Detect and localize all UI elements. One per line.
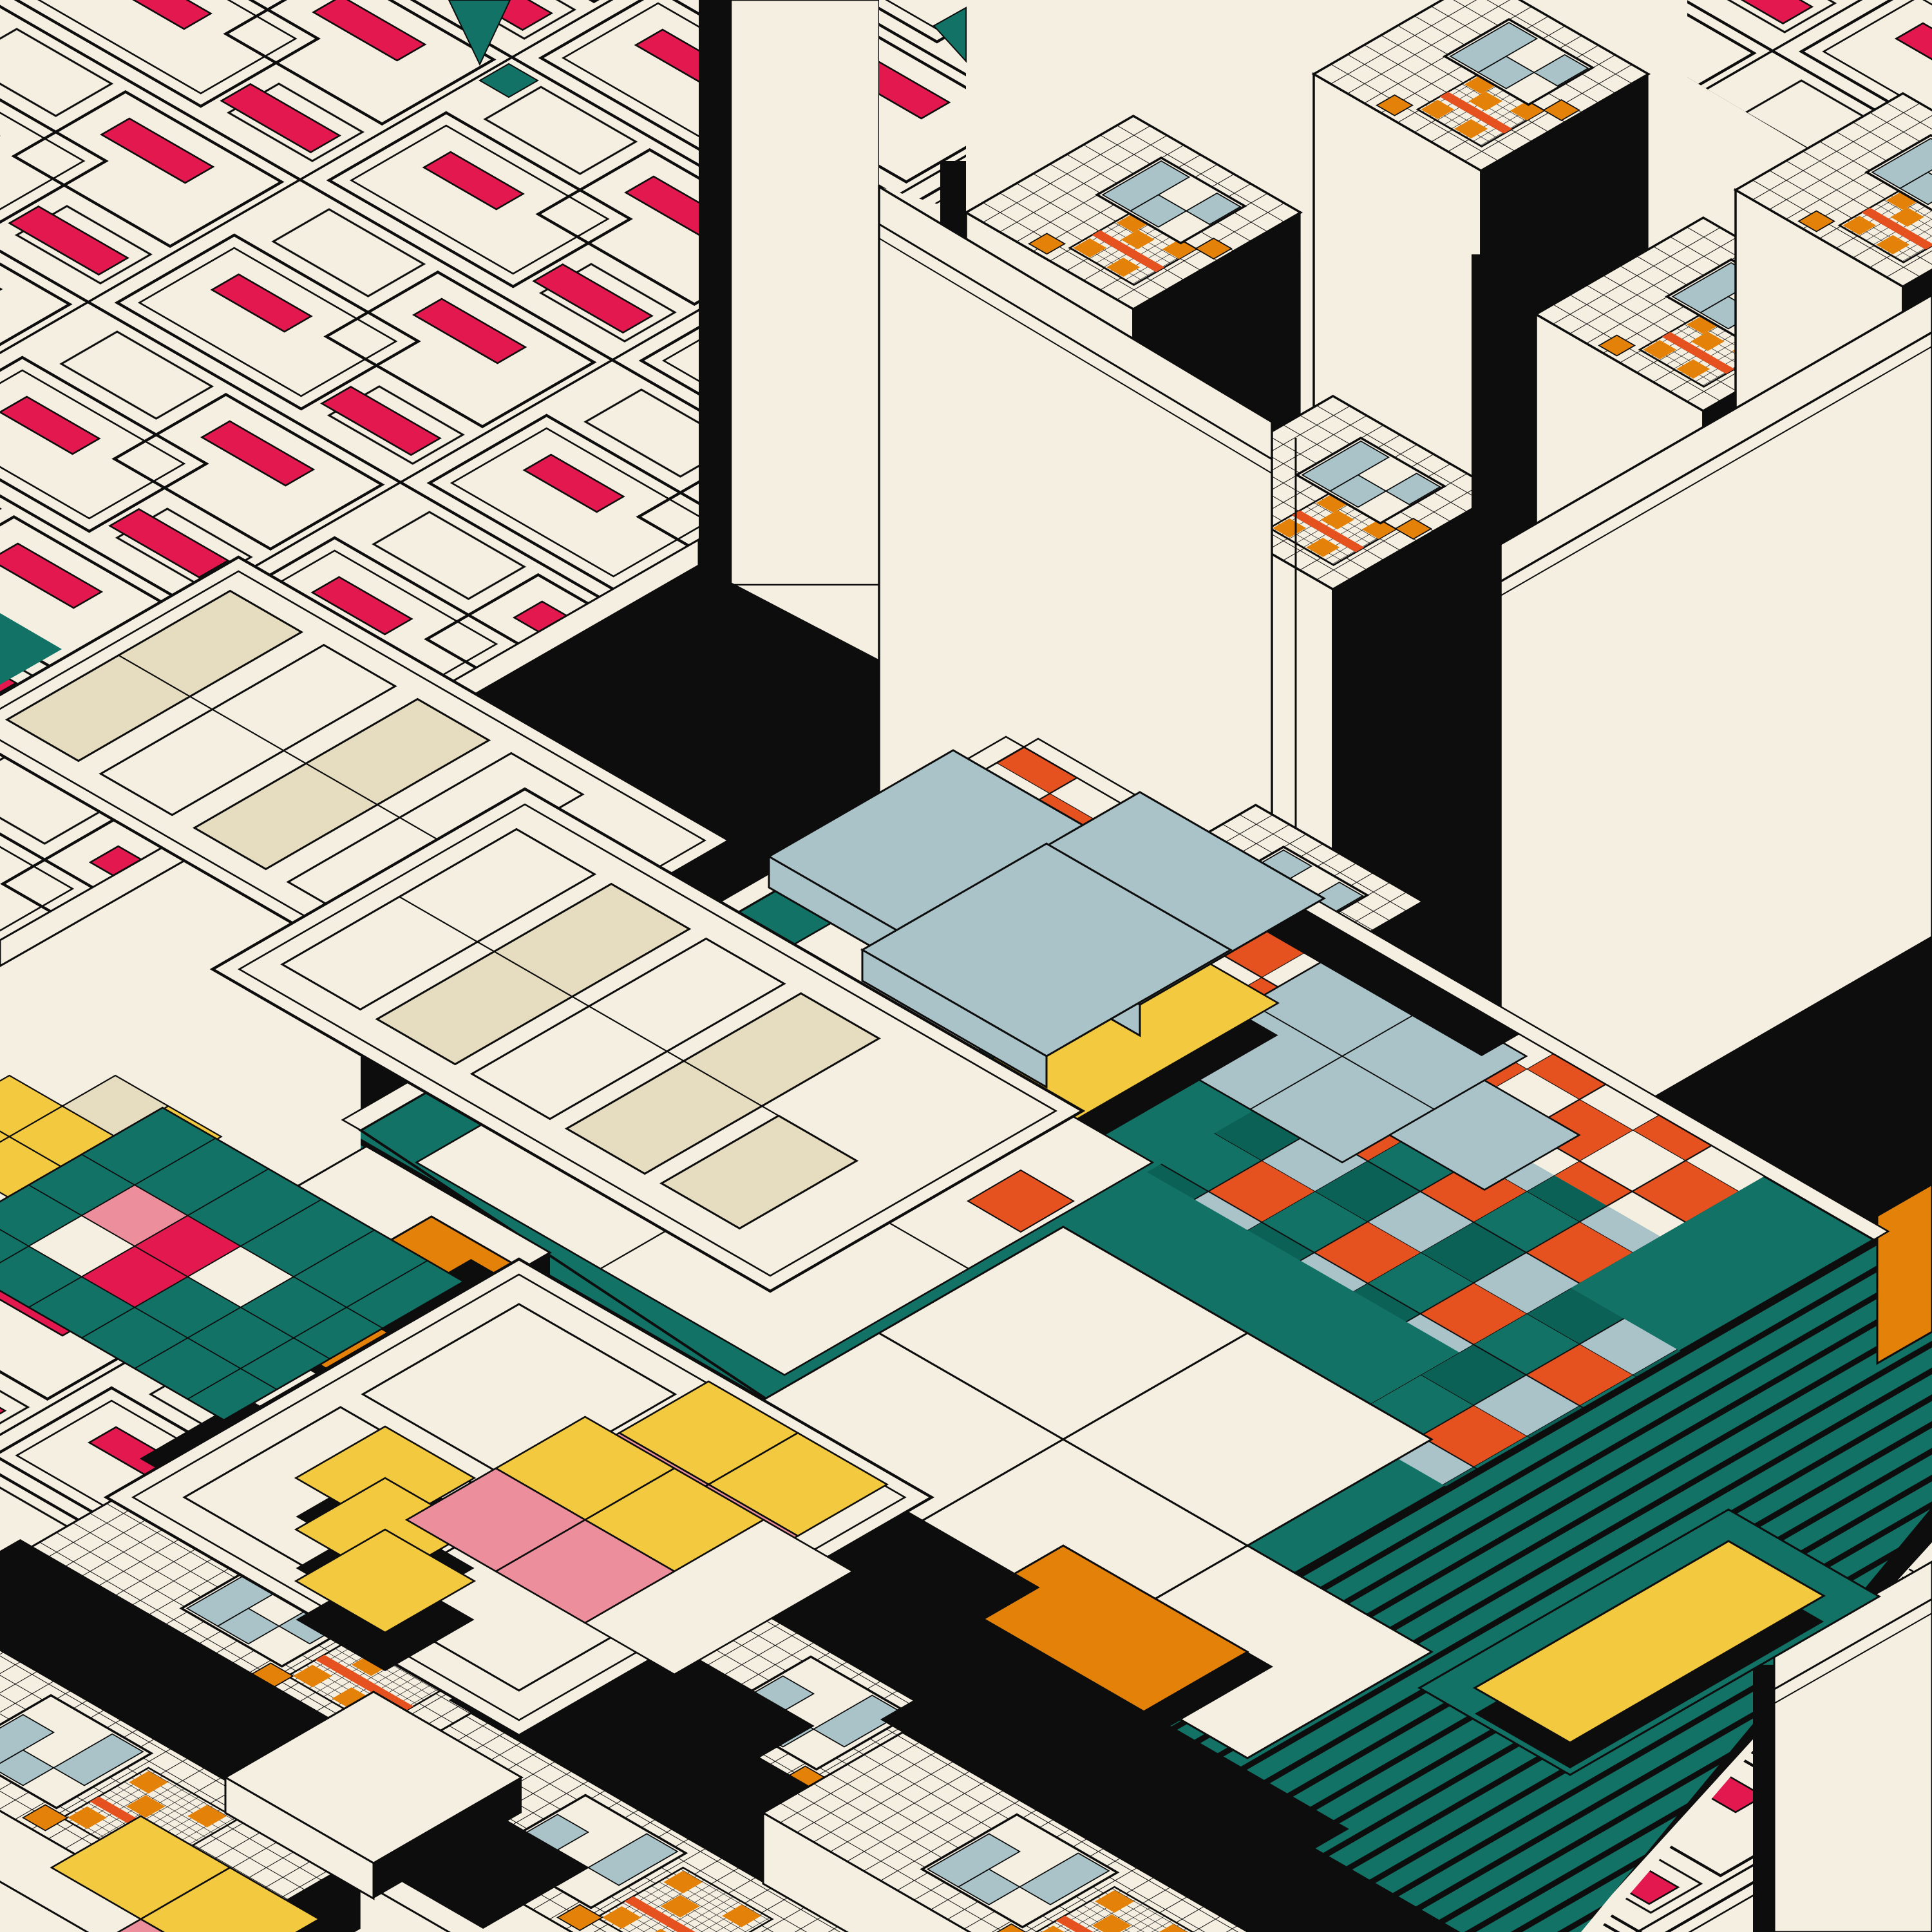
plain-tower-band <box>731 0 879 585</box>
shadow-gap-strip <box>1472 254 1501 551</box>
artwork-stage <box>0 0 1932 1932</box>
isometric-city-artwork <box>0 0 1932 1932</box>
orange-edge-notch <box>1877 1184 1932 1363</box>
shadow-strip <box>699 0 731 583</box>
